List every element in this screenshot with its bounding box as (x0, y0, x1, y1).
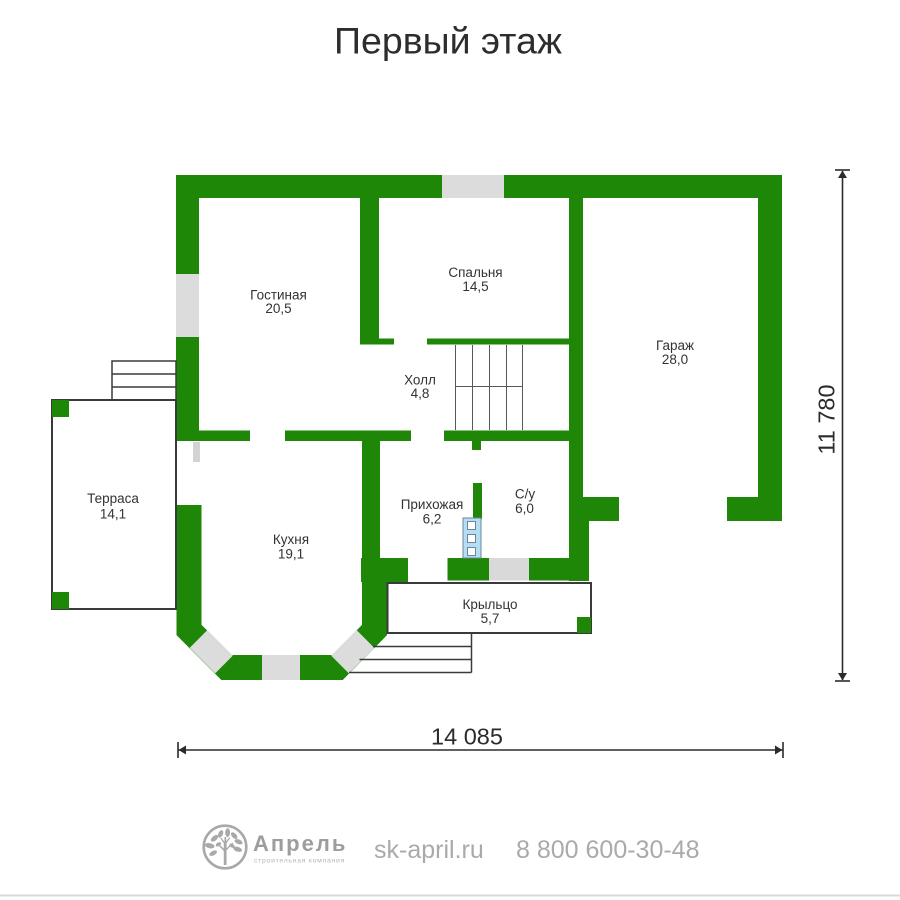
svg-text:14,1: 14,1 (100, 507, 126, 522)
svg-text:5,7: 5,7 (481, 611, 500, 626)
svg-text:Терраса: Терраса (87, 491, 139, 506)
svg-text:8 800 600-30-48: 8 800 600-30-48 (516, 836, 699, 864)
svg-text:Прихожая: Прихожая (401, 497, 464, 512)
svg-text:14,5: 14,5 (462, 279, 488, 294)
svg-text:4,8: 4,8 (411, 386, 430, 401)
svg-text:28,0: 28,0 (662, 352, 688, 367)
svg-text:Первый этаж: Первый этаж (334, 20, 562, 62)
svg-text:6,0: 6,0 (515, 501, 534, 516)
svg-text:6,2: 6,2 (423, 512, 442, 527)
svg-text:14 085: 14 085 (431, 724, 503, 750)
svg-text:Гараж: Гараж (656, 338, 694, 353)
svg-text:11 780: 11 780 (814, 384, 840, 454)
svg-text:С/у: С/у (515, 487, 536, 502)
svg-text:sk-april.ru: sk-april.ru (374, 836, 484, 864)
svg-text:Кухня: Кухня (273, 532, 309, 547)
svg-text:19,1: 19,1 (278, 547, 304, 562)
svg-text:Крыльцо: Крыльцо (462, 597, 517, 612)
svg-text:20,5: 20,5 (265, 301, 291, 316)
svg-text:Апрель: Апрель (253, 831, 347, 856)
svg-text:строительная компания: строительная компания (254, 858, 345, 865)
svg-text:Спальня: Спальня (448, 265, 502, 280)
